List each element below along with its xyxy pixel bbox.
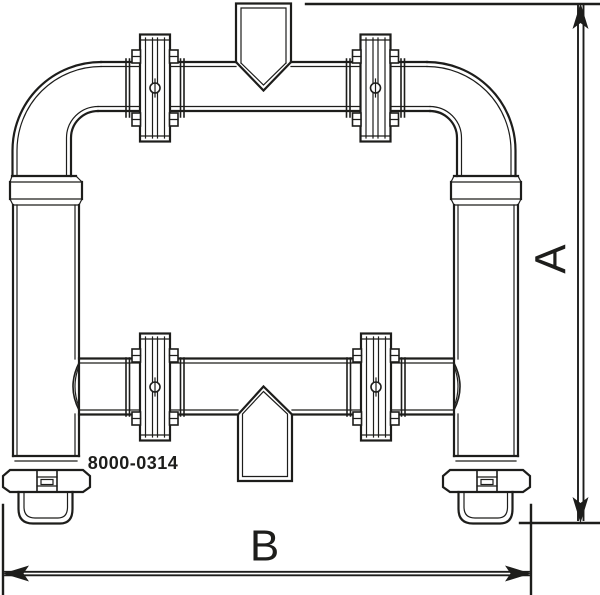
right-foot	[443, 470, 530, 524]
dimension-b-line	[5, 572, 529, 576]
right-chamber	[451, 176, 521, 461]
flange-bottom-right	[347, 334, 405, 441]
dimension-a-line	[578, 6, 584, 520]
outlet-duct	[238, 387, 292, 482]
left-foot	[3, 470, 90, 524]
dimension-a-arrow-down-icon	[573, 497, 589, 523]
dimension-a-label: A	[527, 244, 576, 274]
pump-outline-drawing: A B 8000-0314	[0, 0, 600, 595]
part-number: 8000-0314	[88, 453, 179, 473]
dimension-b-arrow-right-icon	[505, 566, 531, 582]
dimension-b-label: B	[250, 522, 279, 571]
flange-bottom-left	[126, 334, 184, 441]
dimension-b-arrow-left-icon	[3, 566, 29, 582]
flange-top-left	[126, 35, 184, 142]
flange-top-right	[347, 35, 405, 142]
top-manifold-pipe	[13, 62, 516, 176]
inlet-duct	[236, 4, 291, 91]
left-chamber	[10, 176, 82, 461]
dimension-b: B	[3, 505, 531, 594]
dimension-a-arrow-up-icon	[573, 3, 589, 29]
